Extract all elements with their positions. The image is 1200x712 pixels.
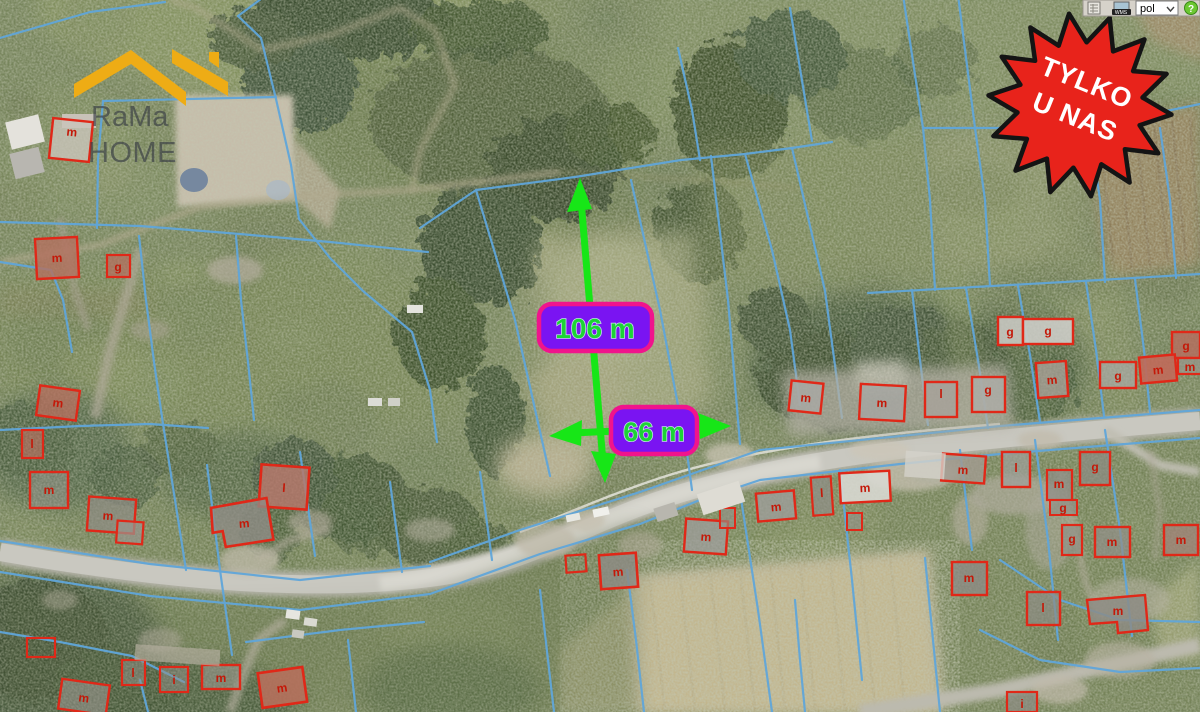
svg-text:m: m — [276, 680, 289, 695]
svg-text:m: m — [51, 251, 62, 266]
svg-text:i: i — [172, 673, 175, 687]
svg-text:g: g — [1044, 324, 1051, 338]
svg-text:l: l — [1014, 461, 1017, 475]
svg-text:m: m — [1113, 604, 1124, 618]
svg-text:66 m: 66 m — [623, 417, 685, 447]
svg-text:m: m — [1176, 533, 1187, 547]
svg-text:l: l — [1041, 601, 1044, 615]
svg-text:m: m — [216, 671, 227, 685]
svg-text:g: g — [114, 260, 121, 274]
svg-text:m: m — [1054, 477, 1065, 491]
svg-text:g: g — [1068, 532, 1075, 546]
svg-text:l: l — [131, 666, 134, 680]
svg-text:m: m — [876, 396, 887, 411]
svg-text:RaMa: RaMa — [91, 101, 169, 133]
svg-text:l: l — [939, 387, 942, 401]
svg-text:g: g — [1091, 460, 1098, 474]
svg-text:m: m — [859, 481, 870, 496]
svg-text:m: m — [66, 125, 78, 140]
svg-text:m: m — [957, 463, 969, 478]
svg-text:m: m — [102, 509, 114, 524]
svg-text:i: i — [1020, 697, 1023, 711]
svg-text:g: g — [1114, 369, 1121, 383]
svg-text:m: m — [238, 516, 250, 531]
svg-text:106 m: 106 m — [555, 313, 634, 344]
svg-text:m: m — [700, 530, 712, 545]
svg-text:?: ? — [1188, 4, 1194, 15]
svg-text:m: m — [78, 690, 91, 705]
svg-text:m: m — [1046, 373, 1058, 388]
svg-text:g: g — [1059, 501, 1066, 515]
svg-text:m: m — [1107, 535, 1118, 549]
svg-text:m: m — [52, 395, 65, 410]
svg-text:WMS: WMS — [1115, 10, 1128, 16]
svg-text:g: g — [1006, 325, 1013, 339]
svg-text:m: m — [800, 390, 812, 405]
svg-text:l: l — [30, 437, 33, 451]
svg-text:m: m — [44, 483, 55, 497]
svg-text:m: m — [1152, 363, 1164, 378]
svg-text:m: m — [770, 500, 782, 515]
svg-text:g: g — [984, 383, 991, 397]
svg-text:m: m — [612, 565, 624, 580]
svg-text:g: g — [1182, 339, 1189, 353]
svg-text:m: m — [1185, 360, 1196, 374]
svg-text:pol: pol — [1140, 3, 1155, 15]
svg-text:m: m — [964, 571, 975, 585]
svg-text:HOME: HOME — [88, 137, 177, 169]
